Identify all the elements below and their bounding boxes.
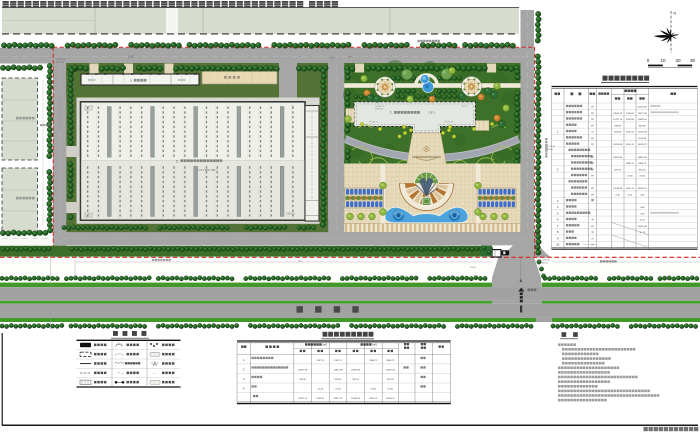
svg-text:20059.21: 20059.21 bbox=[638, 188, 648, 190]
svg-text:23.40: 23.40 bbox=[639, 176, 645, 178]
svg-text:13817.98: 13817.98 bbox=[333, 369, 343, 371]
svg-text:11472.76: 11472.76 bbox=[613, 119, 623, 121]
svg-text:14877.96: 14877.96 bbox=[638, 113, 648, 115]
svg-text:m: m bbox=[591, 237, 593, 240]
svg-text:923.25: 923.25 bbox=[614, 169, 621, 171]
svg-text:4810.12: 4810.12 bbox=[626, 144, 635, 146]
svg-text:1585.30: 1585.30 bbox=[286, 213, 295, 216]
svg-text:13825.94: 13825.94 bbox=[638, 157, 648, 159]
svg-text:·◦: ·◦ bbox=[153, 372, 155, 376]
svg-text:m²: m² bbox=[591, 143, 594, 146]
svg-text:(m²): (m²) bbox=[372, 344, 377, 347]
svg-text:20: 20 bbox=[675, 58, 681, 63]
svg-text:5986.72: 5986.72 bbox=[638, 163, 647, 165]
svg-text:2.: 2. bbox=[176, 159, 179, 163]
svg-text:13825.94: 13825.94 bbox=[613, 157, 623, 159]
svg-text:m²: m² bbox=[591, 106, 594, 109]
svg-text:m²: m² bbox=[591, 175, 594, 178]
svg-text:1F585.75: 1F585.75 bbox=[369, 121, 379, 123]
svg-text:m²: m² bbox=[591, 168, 594, 171]
svg-text:7264.87: 7264.87 bbox=[614, 132, 623, 134]
svg-text:923.25: 923.25 bbox=[387, 379, 394, 381]
svg-text:13825.94: 13825.94 bbox=[386, 369, 396, 371]
svg-text:1330.81: 1330.81 bbox=[316, 398, 325, 400]
svg-text:19.50: 19.50 bbox=[470, 267, 476, 269]
svg-text:4-1585.30: 4-1585.30 bbox=[540, 260, 551, 262]
svg-text:12532.48: 12532.48 bbox=[638, 226, 648, 228]
svg-text:m²: m² bbox=[591, 156, 594, 159]
svg-text:20059.21: 20059.21 bbox=[638, 144, 648, 146]
svg-text:R4.75: R4.75 bbox=[462, 106, 469, 108]
svg-text:13817.98: 13817.98 bbox=[298, 369, 308, 371]
svg-text:13547.15: 13547.15 bbox=[298, 398, 308, 400]
svg-text:m²: m² bbox=[591, 112, 594, 115]
svg-text:1586.10: 1586.10 bbox=[56, 62, 65, 64]
svg-text:14248.09: 14248.09 bbox=[613, 144, 623, 146]
svg-text:1585.30: 1585.30 bbox=[84, 216, 93, 219]
svg-text:929.40: 929.40 bbox=[299, 379, 306, 381]
svg-text:12132.08: 12132.08 bbox=[638, 132, 648, 134]
svg-text:14877.76: 14877.76 bbox=[333, 398, 343, 400]
svg-text:4810.12: 4810.12 bbox=[369, 398, 378, 400]
svg-text:m²: m² bbox=[591, 124, 594, 127]
svg-text:m²: m² bbox=[591, 193, 594, 196]
svg-text:41520.08: 41520.08 bbox=[638, 107, 648, 109]
svg-text:R: R bbox=[292, 105, 294, 108]
svg-text:m: m bbox=[591, 131, 593, 134]
svg-text:1585.30: 1585.30 bbox=[84, 108, 93, 111]
svg-text:4810.12: 4810.12 bbox=[626, 188, 635, 190]
svg-text:5986.72: 5986.72 bbox=[626, 163, 635, 165]
svg-text:14248.09: 14248.09 bbox=[351, 398, 361, 400]
svg-text:929.40: 929.40 bbox=[335, 379, 342, 381]
svg-text:23.40: 23.40 bbox=[318, 388, 324, 390]
svg-text:5986.72: 5986.72 bbox=[369, 360, 378, 362]
svg-text:1584.95: 1584.95 bbox=[375, 108, 384, 110]
svg-text:m²: m² bbox=[591, 137, 594, 140]
svg-text:1580.00: 1580.00 bbox=[540, 263, 549, 265]
svg-text:11895.56: 11895.56 bbox=[638, 119, 648, 121]
svg-text:10: 10 bbox=[660, 58, 666, 63]
svg-text:R9.0: R9.0 bbox=[348, 57, 353, 59]
svg-text:m²: m² bbox=[591, 187, 594, 190]
svg-text:1.: 1. bbox=[390, 111, 393, 115]
svg-text:m²: m² bbox=[591, 118, 594, 121]
svg-text:1F585.75: 1F585.75 bbox=[444, 121, 454, 123]
svg-text:4-1585.30: 4-1585.30 bbox=[56, 59, 67, 61]
svg-text:923.25: 923.25 bbox=[639, 169, 646, 171]
svg-text:1330.81: 1330.81 bbox=[626, 113, 635, 115]
svg-text:0: 0 bbox=[647, 58, 650, 63]
svg-text:30: 30 bbox=[690, 58, 696, 63]
svg-text:m²: m² bbox=[591, 225, 594, 228]
svg-text:31.31: 31.31 bbox=[639, 220, 645, 222]
svg-text:20059.21: 20059.21 bbox=[386, 398, 396, 400]
svg-text:5986.72: 5986.72 bbox=[386, 360, 395, 362]
svg-text:23.40: 23.40 bbox=[335, 388, 341, 390]
svg-text:923.25: 923.25 bbox=[352, 379, 359, 381]
svg-text:13825.94: 13825.94 bbox=[351, 369, 361, 371]
svg-text:14248.09: 14248.09 bbox=[613, 188, 623, 190]
svg-text:35.74: 35.74 bbox=[639, 232, 645, 234]
svg-text:23.40: 23.40 bbox=[371, 388, 377, 390]
svg-text:"⁂": "⁂" bbox=[151, 361, 159, 366]
svg-text:1387.21: 1387.21 bbox=[316, 360, 325, 362]
svg-text:23.40: 23.40 bbox=[627, 176, 633, 178]
svg-text:3.: 3. bbox=[130, 79, 133, 83]
svg-text:4422.80: 4422.80 bbox=[626, 119, 635, 121]
svg-text:( 1F 13817.98 ): ( 1F 13817.98 ) bbox=[197, 168, 216, 172]
svg-text:m²: m² bbox=[591, 162, 594, 165]
svg-text:13547.15: 13547.15 bbox=[613, 113, 623, 115]
svg-text:6.00: 6.00 bbox=[330, 57, 335, 60]
svg-text:4879.41: 4879.41 bbox=[626, 132, 635, 134]
svg-text:12.00: 12.00 bbox=[128, 56, 135, 59]
svg-text:23.40: 23.40 bbox=[388, 388, 394, 390]
svg-text:m²: m² bbox=[591, 244, 594, 247]
svg-text:1387.21: 1387.21 bbox=[334, 360, 343, 362]
svg-text:939.80: 939.80 bbox=[614, 125, 621, 127]
svg-text:2516.94: 2516.94 bbox=[638, 138, 647, 140]
svg-text:( 3F ): ( 3F ) bbox=[428, 111, 435, 115]
svg-text:949.80: 949.80 bbox=[639, 125, 646, 127]
svg-text:(m²): (m²) bbox=[323, 344, 328, 347]
